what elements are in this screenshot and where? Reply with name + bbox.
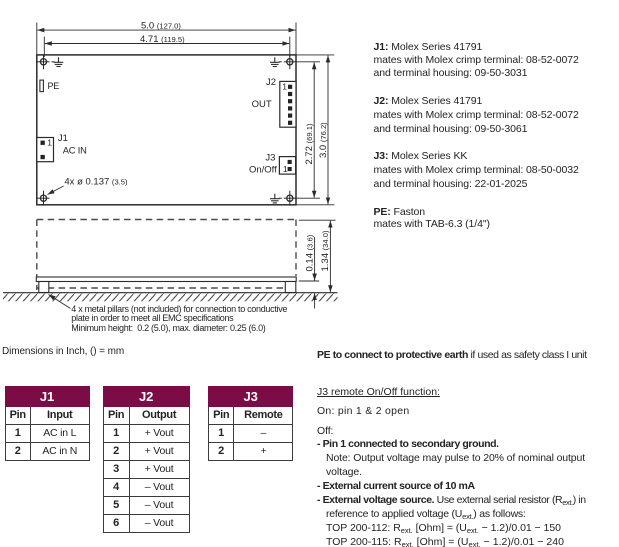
svg-text:On/Off: On/Off <box>249 164 277 175</box>
svg-text:0.14 (3.6): 0.14 (3.6) <box>304 234 315 271</box>
svg-text:1: 1 <box>47 138 52 148</box>
svg-text:OUT: OUT <box>252 99 272 110</box>
svg-text:J1: J1 <box>58 133 68 144</box>
svg-text:4.71 (119.5): 4.71 (119.5) <box>140 34 185 45</box>
svg-text:3.0 (76.2): 3.0 (76.2) <box>318 122 329 158</box>
svg-text:4x ø 0.137 (3.5): 4x ø 0.137 (3.5) <box>64 176 128 187</box>
svg-text:1: 1 <box>282 82 287 92</box>
svg-text:PE: PE <box>48 81 60 91</box>
svg-text:1: 1 <box>283 164 288 174</box>
svg-text:AC IN: AC IN <box>63 146 87 156</box>
svg-text:2.72 (69.1): 2.72 (69.1) <box>304 123 315 164</box>
svg-text:5.0 (127.0): 5.0 (127.0) <box>141 21 181 32</box>
svg-text:J2: J2 <box>266 77 276 88</box>
svg-text:J3: J3 <box>265 152 275 163</box>
svg-text:1.34 (34.0): 1.34 (34.0) <box>320 230 331 271</box>
